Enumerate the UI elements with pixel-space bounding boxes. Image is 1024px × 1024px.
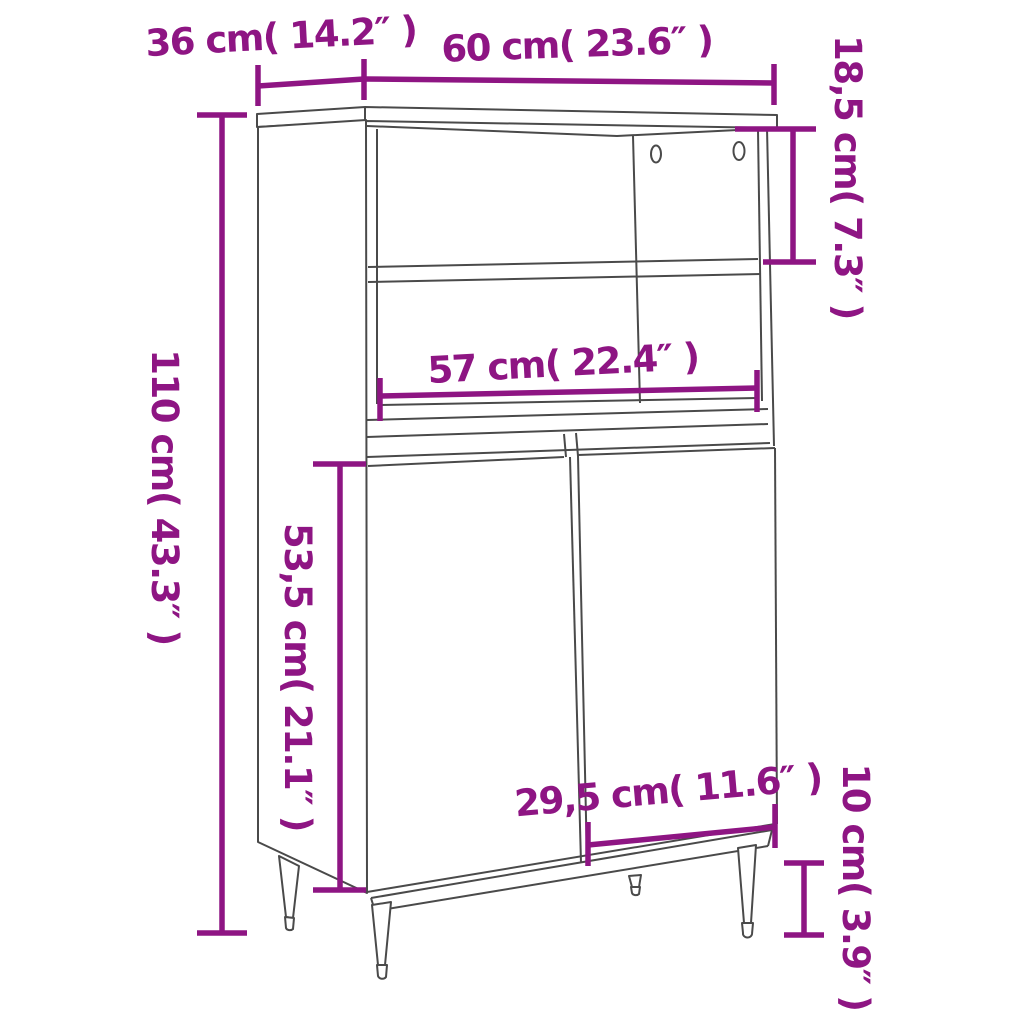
leg-foot — [285, 917, 294, 930]
dimension-label: 110 cm( 43.3″ ) — [143, 349, 186, 645]
dimension-label: 57 cm( 22.4″ ) — [426, 335, 699, 392]
dim-line — [364, 79, 774, 83]
leg-foot — [742, 923, 753, 938]
bottom-shelf-lower-edge — [367, 424, 768, 437]
bottom-band-lower — [375, 846, 768, 911]
dimension-inner-width: 57 cm( 22.4″ ) — [380, 335, 757, 421]
middle-shelf-bottom — [368, 274, 761, 282]
right-side-edge — [767, 128, 774, 446]
leg-back-left — [279, 856, 299, 918]
mounting-hole-icon — [734, 142, 745, 160]
dimension-overall-height: 110 cm( 43.3″ ) — [143, 115, 247, 933]
dimension-label: 53,5 cm( 21.1″ ) — [276, 523, 319, 831]
leg-back-center — [629, 875, 641, 887]
leg-front-right — [738, 845, 756, 923]
cabinet-dimension-drawing: 36 cm( 14.2″ ) 60 cm( 23.6″ ) 18,5 cm( 7… — [0, 0, 1024, 1024]
dimension-label: 60 cm( 23.6″ ) — [441, 18, 714, 70]
dimension-top-compartment-height: 18,5 cm( 7.3″ ) — [735, 35, 869, 319]
leg-foot — [377, 965, 387, 979]
dimension-label: 10 cm( 3.9″ ) — [834, 763, 877, 1010]
leg-foot — [631, 887, 640, 895]
middle-shelf-top — [368, 259, 758, 267]
dimension-depth: 36 cm( 14.2″ ) — [144, 8, 417, 106]
dimension-door-width: 29,5 cm( 11.6″ ) — [513, 756, 824, 866]
open-section-right-wall — [758, 130, 762, 401]
bottom-shelf-front-edge — [367, 409, 768, 420]
bottom-band-right-cap — [768, 830, 772, 846]
dimension-label: 36 cm( 14.2″ ) — [144, 8, 417, 65]
dimension-diagram: 36 cm( 14.2″ ) 60 cm( 23.6″ ) 18,5 cm( 7… — [0, 0, 1024, 1024]
left-door-top — [368, 457, 564, 466]
body-bottom-edge — [371, 830, 772, 898]
dim-line — [588, 827, 775, 845]
leg-front-left — [372, 902, 391, 965]
dim-line — [258, 79, 364, 86]
dimension-width: 60 cm( 23.6″ ) — [364, 18, 774, 105]
mounting-hole-icon — [651, 146, 661, 163]
center-stile-left — [564, 434, 566, 457]
center-stile-right — [576, 433, 578, 456]
bottom-shelf-back-edge — [378, 398, 757, 405]
dimension-label: 18,5 cm( 7.3″ ) — [826, 35, 869, 319]
